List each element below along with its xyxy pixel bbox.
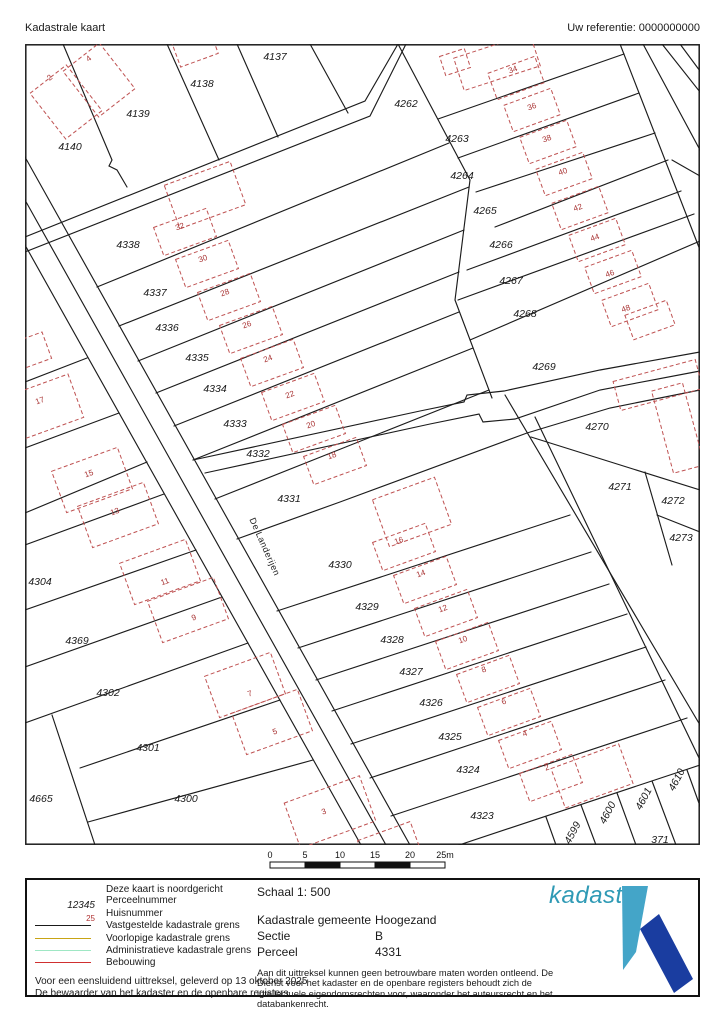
page-title: Kadastrale kaart	[25, 22, 105, 34]
parcel-number-label: 4335	[185, 352, 209, 364]
parcel-number-label: 4137	[263, 51, 288, 63]
scale-bar-segment	[340, 862, 375, 868]
parcel-number-label: 4138	[190, 78, 214, 90]
parcel-number-label: 4333	[223, 418, 247, 430]
north-note: Deze kaart is noordgericht	[106, 884, 223, 896]
parcel-number-label: 4338	[116, 239, 140, 251]
scale-bar-segment	[375, 862, 410, 868]
parcel-number-label: 4324	[456, 764, 480, 776]
field-label: Sectie	[257, 929, 290, 943]
scale-bar-segment	[305, 862, 340, 868]
legend-line-swatch	[35, 950, 91, 951]
disclaimer-text: Aan dit uittreksel kunnen geen betrouwba…	[257, 968, 569, 1010]
scale-bar-tick-label: 15	[370, 850, 380, 860]
legend-line-swatch	[35, 962, 91, 963]
kadaster-logo-icon	[587, 880, 698, 995]
parcel-number-label: 4369	[65, 635, 89, 647]
parcel-number-label: 4301	[136, 742, 159, 754]
parcel-number-label: 4302	[96, 687, 120, 699]
field-value: 4331	[375, 945, 402, 959]
parcel-number-label: 4323	[470, 810, 494, 822]
scale-bar-tick-label: 5	[302, 850, 307, 860]
legend-item: Administratieve kadastrale grens	[27, 945, 357, 957]
parcel-number-label: 4337	[143, 287, 168, 299]
parcel-number-label: 4265	[473, 205, 497, 217]
logo-leg-shape	[640, 914, 693, 993]
parcel-number-label: 4326	[419, 697, 443, 709]
field-value: Hoogezand	[375, 913, 436, 927]
parcel-number-label: 4331	[277, 493, 300, 505]
legend-item-label: Vastgestelde kadastrale grens	[106, 920, 240, 931]
legend-line-swatch	[35, 925, 91, 926]
parcel-number-label: 4330	[328, 559, 352, 571]
reference-label: Uw referentie: 0000000000	[567, 22, 700, 34]
parcel-number-label: 4140	[58, 141, 82, 153]
parcel-number-label: 4327	[399, 666, 424, 678]
parcel-number-label: 371	[651, 834, 669, 845]
legend-item-label: Perceelnummer	[106, 895, 177, 906]
legend-line-swatch	[35, 938, 91, 939]
parcel-number-label: 4269	[532, 361, 556, 373]
legend-item-label: Voorlopige kadastrale grens	[106, 933, 230, 944]
parcel-number-label: 4263	[445, 133, 469, 145]
legend-box: Deze kaart is noordgericht 12345Perceeln…	[25, 878, 700, 997]
cadastral-map: 4137413841394140433843374336433543344333…	[25, 44, 700, 845]
parcel-number-label: 4270	[585, 421, 609, 433]
parcel-number-label: 4332	[246, 448, 270, 460]
parcel-number-label: 4267	[499, 275, 524, 287]
scale-text: Schaal 1: 500	[257, 886, 330, 900]
scale-bar-segment	[270, 862, 305, 868]
scale-bar-segment	[410, 862, 445, 868]
legend-item-label: Bebouwing	[106, 957, 155, 968]
page: { "header": { "title": "Kadastrale kaart…	[0, 0, 724, 1024]
parcel-number-label: 4271	[608, 481, 631, 493]
scale-bar-tick-label: 25m	[436, 850, 454, 860]
legend-item-label: Huisnummer	[106, 908, 163, 919]
map-border	[26, 45, 699, 844]
parcel-number-label: 4304	[28, 576, 52, 588]
parcel-number-label: 4262	[394, 98, 418, 110]
parcel-number-label: 4329	[355, 601, 379, 613]
parcel-number-label: 4273	[669, 532, 693, 544]
scale-bar-tick-label: 20	[405, 850, 415, 860]
parcel-number-label: 4272	[661, 495, 685, 507]
parcel-number-label: 4336	[155, 322, 179, 334]
parcel-number-label: 4325	[438, 731, 462, 743]
parcel-number-label: 4268	[513, 308, 537, 320]
legend-item: Voorlopige kadastrale grens	[27, 933, 357, 945]
scale-bar: 0510152025m	[258, 849, 468, 875]
scale-bar-tick-label: 0	[267, 850, 272, 860]
parcel-number-label: 4266	[489, 239, 513, 251]
parcel-number-label: 4300	[174, 793, 198, 805]
parcel-number-label: 4264	[450, 170, 474, 182]
field-label: Perceel	[257, 945, 298, 959]
parcel-number-label: 4328	[380, 634, 404, 646]
field-label: Kadastrale gemeente	[257, 913, 371, 927]
scale-bar-tick-label: 10	[335, 850, 345, 860]
cadastral-map-svg: 4137413841394140433843374336433543344333…	[25, 44, 700, 845]
field-value: B	[375, 929, 383, 943]
parcel-number-label: 4334	[203, 383, 227, 395]
parcel-number-label: 4665	[29, 793, 53, 805]
parcel-number-label: 4139	[126, 108, 150, 120]
legend-item-label: Administratieve kadastrale grens	[106, 945, 251, 956]
